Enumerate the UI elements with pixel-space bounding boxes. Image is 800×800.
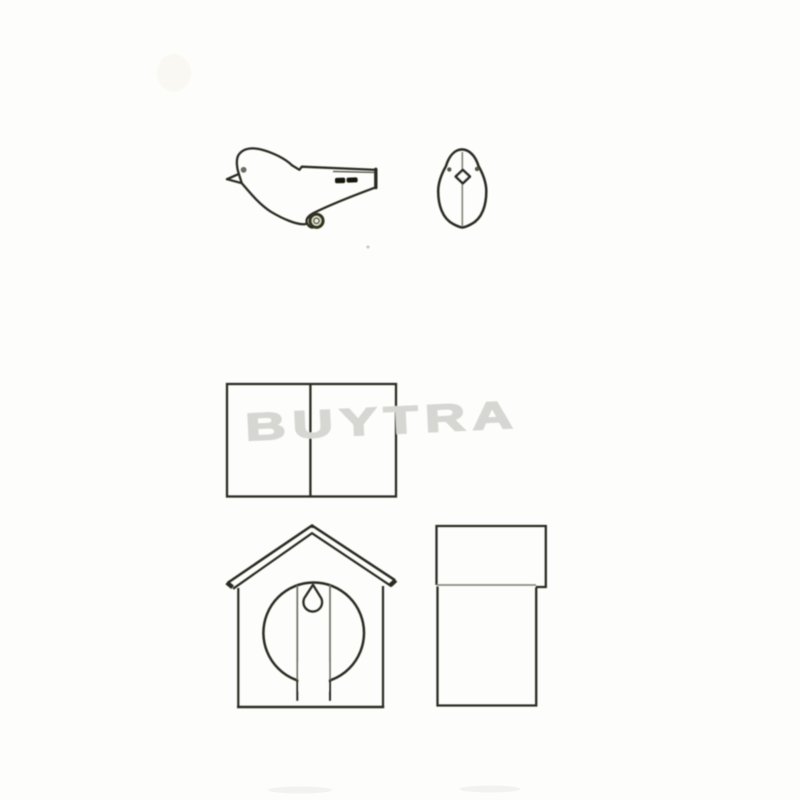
svg-text:BUYTRA: BUYTRA — [244, 394, 520, 449]
